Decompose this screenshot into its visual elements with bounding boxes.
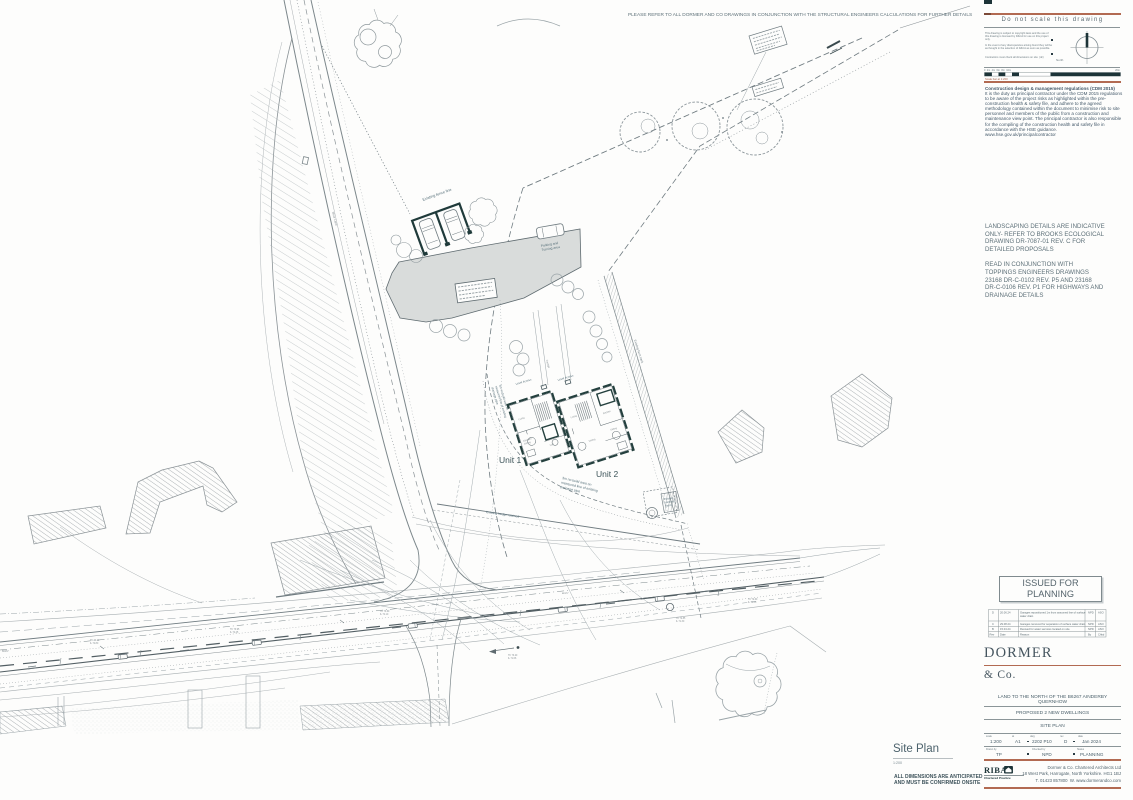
svg-text:Garages removed for separation: Garages removed for separation of surfac… [1020, 622, 1086, 626]
svg-text:B: B [992, 627, 994, 631]
svg-text:TK 72.85: TK 72.85 [676, 618, 686, 620]
svg-text:IL 72.80: IL 72.80 [90, 643, 99, 645]
svg-text:Existing hedge retained: Existing hedge retained [486, 510, 520, 519]
svg-text:NPD: NPD [1088, 622, 1094, 626]
svg-text:NPD: NPD [1088, 611, 1094, 615]
svg-text:Unit 1: Unit 1 [499, 455, 521, 465]
svg-text:15.04.24: 15.04.24 [1000, 627, 1011, 631]
svg-text:Reason: Reason [1020, 632, 1030, 636]
svg-text:Level Access: Level Access [515, 377, 532, 386]
svg-text:Date: Date [1000, 632, 1006, 636]
svg-text:Garages repositioned 1m from a: Garages repositioned 1m from assumed lin… [1020, 611, 1086, 615]
svg-text:By: By [1088, 632, 1092, 636]
svg-text:TK 73.60: TK 73.60 [380, 611, 390, 613]
svg-text:TK 74.21: TK 74.21 [90, 640, 100, 642]
svg-text:Unit 2: Unit 2 [596, 469, 618, 479]
svg-text:ASO: ASO [1098, 622, 1104, 626]
svg-text:B6267: B6267 [562, 593, 569, 595]
svg-text:NPD: NPD [1088, 627, 1094, 631]
svg-text:IL 71.66: IL 71.66 [508, 658, 517, 660]
svg-text:C: C [992, 622, 994, 626]
svg-text:Existing fence line: Existing fence line [422, 188, 452, 202]
svg-text:water drain: water drain [1020, 614, 1034, 618]
svg-text:TK 73.20: TK 73.20 [508, 655, 518, 657]
svg-text:Moor Lane: Moor Lane [331, 211, 338, 226]
svg-text:Revised for water services loc: Revised for water services located on si… [1020, 627, 1070, 631]
svg-text:B6267: B6267 [2, 651, 9, 653]
svg-text:IL 71.30: IL 71.30 [676, 621, 685, 623]
svg-text:IL 71.05: IL 71.05 [748, 602, 757, 604]
svg-text:IL 72.10: IL 72.10 [380, 614, 389, 616]
svg-text:ASO: ASO [1098, 611, 1104, 615]
svg-text:ASO: ASO [1098, 627, 1104, 631]
svg-text:Rev: Rev [990, 632, 995, 636]
svg-text:IL 72.45: IL 72.45 [230, 632, 239, 634]
svg-text:Chkd: Chkd [1098, 632, 1105, 636]
svg-text:D: D [992, 611, 994, 615]
svg-text:20.06.24: 20.06.24 [1000, 611, 1011, 615]
svg-text:29.08.24: 29.08.24 [1000, 622, 1011, 626]
svg-text:TK 73.95: TK 73.95 [230, 629, 240, 631]
svg-text:TK 72.60: TK 72.60 [748, 599, 758, 601]
svg-text:Garage: Garage [545, 359, 551, 369]
